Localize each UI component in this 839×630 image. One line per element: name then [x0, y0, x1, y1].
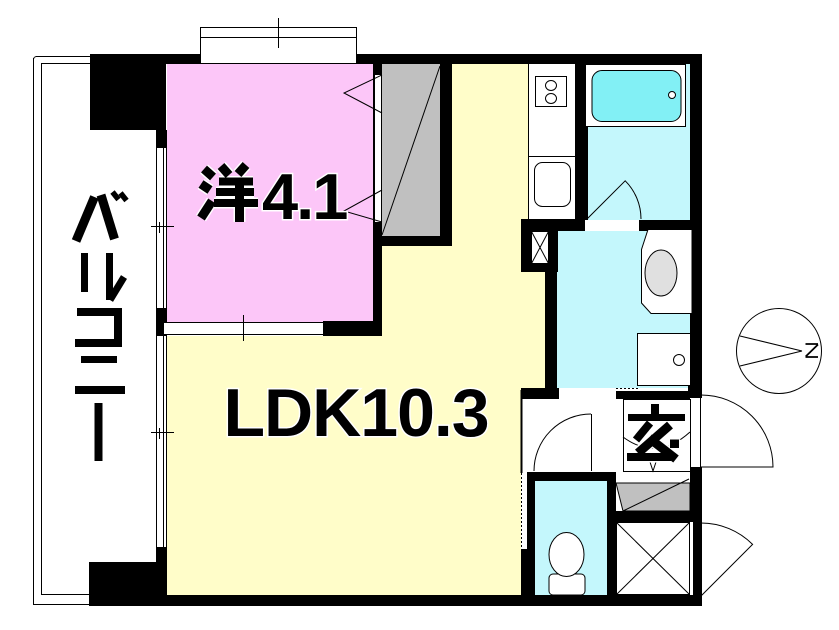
svg-text:LDK10.3: LDK10.3	[224, 375, 489, 451]
svg-text:4.1: 4.1	[262, 160, 347, 233]
